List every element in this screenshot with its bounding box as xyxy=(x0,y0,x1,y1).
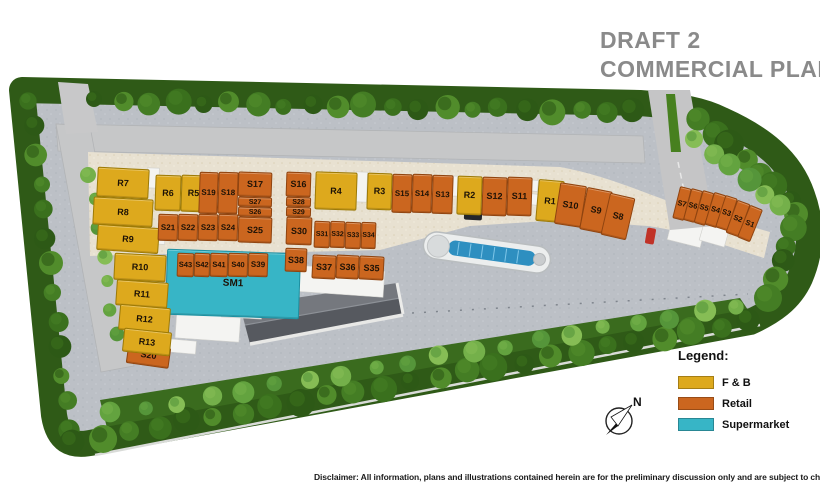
unit-label: S43 xyxy=(179,261,193,269)
unit-label: S42 xyxy=(195,261,209,269)
unit-S12: S12 xyxy=(481,177,507,217)
legend-label-supermarket: Supermarket xyxy=(722,419,789,431)
unit-S36: S36 xyxy=(335,254,359,279)
unit-label: S23 xyxy=(201,223,216,231)
unit-label: S9 xyxy=(590,205,603,216)
unit-S42: S42 xyxy=(194,253,211,278)
unit-S17: S17 xyxy=(238,171,273,197)
disclaimer-text: Disclaimer: All information, plans and i… xyxy=(314,472,820,482)
unit-label: S35 xyxy=(363,263,379,273)
unit-label: S8 xyxy=(612,211,625,222)
unit-S37: S37 xyxy=(311,254,336,279)
unit-label: S21 xyxy=(161,223,176,231)
legend-swatch-retail xyxy=(678,397,714,410)
unit-label: S28 xyxy=(292,198,305,205)
unit-label: S37 xyxy=(316,262,332,272)
unit-label: S13 xyxy=(435,190,450,198)
unit-S40: S40 xyxy=(228,253,249,278)
unit-label: S14 xyxy=(415,189,430,197)
unit-label: S15 xyxy=(395,189,410,197)
unit-label: R3 xyxy=(374,187,386,196)
unit-R9: R9 xyxy=(96,224,160,254)
unit-label: S10 xyxy=(562,199,579,210)
unit-label: S22 xyxy=(181,223,196,231)
legend-swatch-supermarket xyxy=(678,418,714,431)
unit-S16: S16 xyxy=(286,172,312,198)
unit-S34: S34 xyxy=(361,222,377,250)
unit-label: S33 xyxy=(347,232,360,239)
unit-S43: S43 xyxy=(177,253,195,278)
unit-S23: S23 xyxy=(198,214,219,242)
unit-label: S27 xyxy=(249,198,262,205)
unit-label: SM1 xyxy=(223,279,244,290)
unit-S31: S31 xyxy=(314,221,331,249)
unit-label: R9 xyxy=(122,234,134,244)
unit-R2: R2 xyxy=(456,176,482,216)
unit-label: R7 xyxy=(117,178,129,188)
legend-label-retail: Retail xyxy=(722,398,752,410)
unit-S15: S15 xyxy=(391,174,412,214)
unit-R8: R8 xyxy=(92,196,153,227)
unit-S24: S24 xyxy=(218,214,239,242)
unit-label: R11 xyxy=(134,289,151,299)
unit-label: R10 xyxy=(132,263,149,273)
unit-label: S12 xyxy=(486,192,502,202)
unit-R3: R3 xyxy=(366,173,392,211)
unit-label: S34 xyxy=(362,232,375,239)
unit-S30: S30 xyxy=(286,217,313,246)
unit-label: S40 xyxy=(231,261,245,269)
legend-row-supermarket: Supermarket xyxy=(678,414,789,435)
unit-label: S30 xyxy=(291,226,307,236)
unit-R13: R13 xyxy=(122,328,172,357)
unit-label: S38 xyxy=(288,255,304,265)
legend-row-fnb: F & B xyxy=(678,372,789,393)
unit-S22: S22 xyxy=(178,214,199,242)
unit-S14: S14 xyxy=(411,174,432,214)
unit-R7: R7 xyxy=(96,167,149,200)
unit-label: R4 xyxy=(330,186,342,195)
unit-label: S39 xyxy=(251,261,266,269)
unit-S25: S25 xyxy=(238,216,273,243)
unit-S18: S18 xyxy=(217,172,238,215)
plan-title: DRAFT 2 COMMERCIAL PLAN xyxy=(600,26,820,84)
legend-swatch-fnb xyxy=(678,376,714,389)
unit-label: R13 xyxy=(138,337,155,348)
title-line-commercial: COMMERCIAL PLAN xyxy=(600,55,820,84)
unit-label: R6 xyxy=(162,188,174,197)
unit-label: R1 xyxy=(544,196,556,206)
title-line-draft: DRAFT 2 xyxy=(600,26,820,55)
unit-label: R2 xyxy=(464,191,476,200)
unit-S32: S32 xyxy=(330,221,346,249)
legend-label-fnb: F & B xyxy=(722,377,751,389)
unit-S19: S19 xyxy=(198,172,218,215)
unit-S35: S35 xyxy=(358,255,384,280)
unit-S21: S21 xyxy=(158,214,179,242)
unit-label: S24 xyxy=(221,223,236,231)
unit-S11: S11 xyxy=(506,177,532,217)
unit-label: S36 xyxy=(339,262,355,272)
unit-label: S41 xyxy=(212,261,226,269)
unit-label: S16 xyxy=(290,180,306,190)
unit-R6: R6 xyxy=(154,175,181,212)
unit-label: S29 xyxy=(292,208,305,215)
commercial-plan-page: N R7R8R9R6R5S19S18S17S27S26S21S22S23S24S… xyxy=(0,0,820,492)
unit-label: S31 xyxy=(316,231,329,238)
unit-S39: S39 xyxy=(248,253,269,278)
unit-label: S32 xyxy=(331,231,344,238)
legend-heading: Legend: xyxy=(678,348,789,363)
unit-label: S25 xyxy=(247,225,263,235)
unit-label: S1 xyxy=(744,218,755,228)
unit-label: S19 xyxy=(201,189,216,197)
unit-S13: S13 xyxy=(431,175,453,215)
unit-S41: S41 xyxy=(210,253,229,278)
unit-R10: R10 xyxy=(113,253,166,283)
unit-R4: R4 xyxy=(314,171,357,210)
unit-label: S11 xyxy=(512,192,528,202)
unit-label: R5 xyxy=(188,189,200,198)
unit-label: S26 xyxy=(249,208,262,215)
unit-label: S18 xyxy=(221,189,236,197)
unit-label: R8 xyxy=(117,207,129,217)
legend-row-retail: Retail xyxy=(678,393,789,414)
unit-label: R12 xyxy=(136,314,153,324)
unit-label: S17 xyxy=(247,180,263,190)
unit-S33: S33 xyxy=(345,222,362,250)
unit-S38: S38 xyxy=(285,248,308,273)
legend: Legend: F & B Retail Supermarket xyxy=(678,348,789,435)
